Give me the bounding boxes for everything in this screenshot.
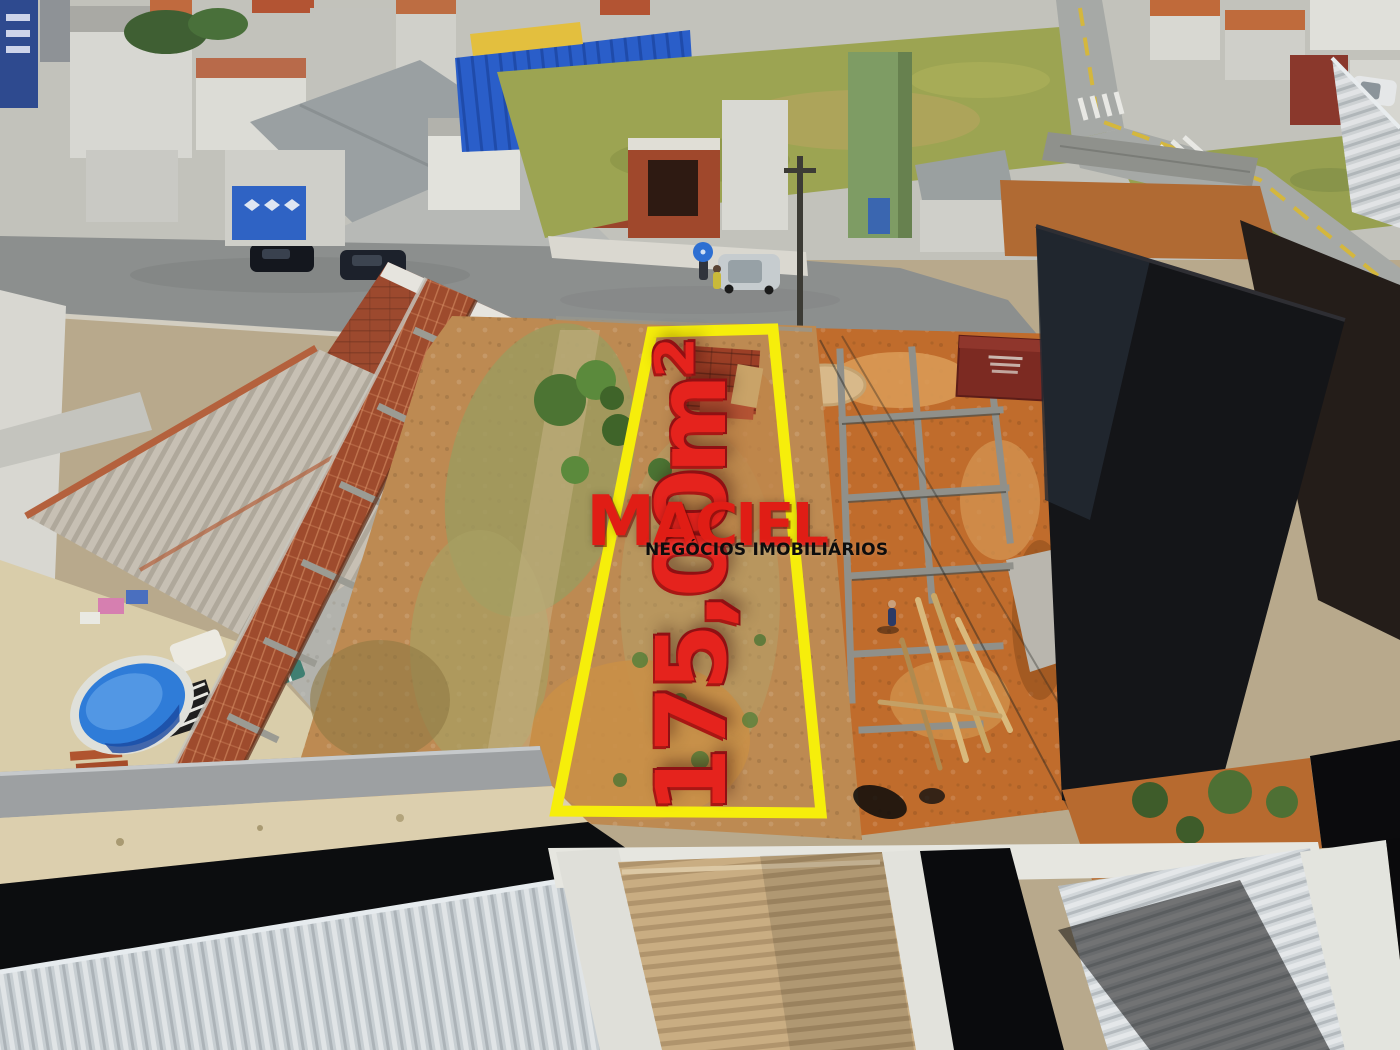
laundry-item	[98, 598, 124, 614]
laundry-item	[80, 612, 100, 624]
brand-tagline: NEGÓCIOS IMOBILIÁRIOS	[645, 542, 888, 559]
silver-car	[718, 254, 780, 295]
garage-house	[225, 150, 345, 246]
storage-container	[956, 336, 1045, 400]
listing-photo: 175,00m² MACIEL NEGÓCIOS IMOBILIÁRIOS	[0, 0, 1400, 1050]
green-building	[848, 52, 912, 238]
person-yellow-vest	[713, 265, 721, 289]
parked-car-dark-1	[250, 244, 314, 272]
laundry-item	[126, 590, 148, 604]
area-label: 175,00m²	[644, 342, 740, 815]
tan-roof	[618, 852, 918, 1050]
utility-pole	[797, 156, 803, 336]
